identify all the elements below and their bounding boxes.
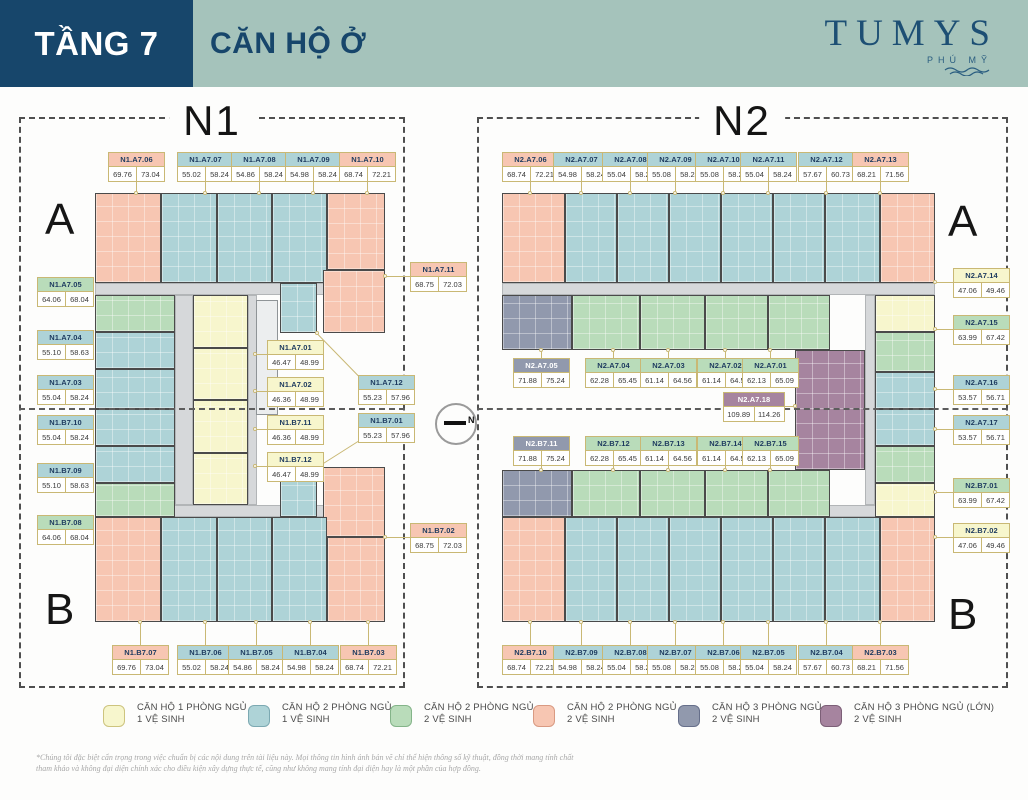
unit-code: N2.A7.18 [724, 393, 784, 407]
unit-block [669, 193, 721, 283]
unit-area-1: 68.75 [411, 538, 438, 552]
leader-dot [878, 620, 882, 624]
unit-label: N1.B7.0864.0668.04 [37, 515, 94, 545]
unit-area-2: 65.09 [770, 373, 798, 387]
plan-title-n2: N2 [699, 98, 785, 144]
legend-swatch [103, 705, 125, 727]
unit-areas: 69.7673.04 [109, 167, 164, 181]
unit-area-1: 55.08 [648, 167, 675, 181]
leader-dot [611, 348, 615, 352]
leader-dot [766, 191, 770, 195]
unit-area-2: 71.56 [880, 660, 908, 674]
unit-area-2: 58.24 [313, 167, 341, 181]
unit-code: N2.B7.04 [799, 646, 854, 660]
unit-area-1: 55.10 [38, 478, 65, 492]
unit-area-1: 46.36 [268, 392, 295, 406]
unit-area-1: 55.02 [178, 167, 205, 181]
unit-area-1: 54.86 [232, 167, 259, 181]
leader-line [935, 389, 953, 390]
unit-area-1: 55.04 [741, 167, 768, 181]
legend-line-2: 2 VỆ SINH [712, 714, 822, 726]
unit-area-2: 58.24 [256, 660, 284, 674]
unit-code: N2.A7.16 [954, 376, 1009, 390]
unit-areas: 68.2171.56 [853, 167, 908, 181]
unit-area-1: 46.47 [268, 467, 295, 481]
unit-label: N2.B7.1068.7472.21 [502, 645, 559, 675]
leader-dot [766, 620, 770, 624]
unit-block [280, 283, 317, 333]
wave-icon [944, 67, 990, 76]
unit-label: N2.A7.0571.8875.24 [513, 358, 570, 388]
leader-dot [539, 348, 543, 352]
unit-area-2: 65.09 [770, 451, 798, 465]
legend-item: CĂN HỘ 2 PHÒNG NGỦ2 VỆ SINH [533, 702, 677, 727]
unit-block [161, 517, 217, 622]
unit-block [95, 193, 161, 283]
unit-block [323, 270, 385, 333]
unit-area-1: 55.04 [38, 430, 65, 444]
unit-areas: 64.0668.04 [38, 530, 93, 544]
unit-area-1: 62.28 [586, 373, 613, 387]
leader-dot [723, 348, 727, 352]
unit-block [272, 517, 327, 622]
unit-label: N1.B7.1246.4748.99 [267, 452, 324, 482]
unit-label: N1.A7.0246.3648.99 [267, 377, 324, 407]
unit-areas: 54.9858.24 [554, 660, 609, 674]
leader-line [385, 537, 410, 538]
unit-area-1: 61.14 [698, 373, 725, 387]
page-title: CĂN HỘ Ở [210, 0, 366, 87]
unit-code: N1.B7.08 [38, 516, 93, 530]
legend-label: CĂN HỘ 3 PHÒNG NGỦ (LỚN)2 VỆ SINH [854, 702, 994, 726]
unit-label: N1.B7.0655.0258.24 [177, 645, 234, 675]
leader-line [675, 622, 676, 645]
unit-block [875, 446, 935, 483]
leader-dot [666, 468, 670, 472]
unit-area-2: 48.99 [295, 392, 323, 406]
unit-area-2: 67.42 [981, 330, 1009, 344]
leader-line [935, 282, 953, 283]
unit-areas: 54.8658.24 [229, 660, 284, 674]
leader-dot [203, 191, 207, 195]
unit-areas: 57.6760.73 [799, 660, 854, 674]
unit-block [193, 348, 248, 400]
unit-areas: 55.0458.24 [741, 167, 796, 181]
corridor [502, 283, 935, 295]
unit-area-1: 68.74 [341, 660, 368, 674]
legend-swatch [678, 705, 700, 727]
leader-dot [933, 327, 937, 331]
unit-block [272, 193, 327, 283]
leader-dot [611, 468, 615, 472]
unit-label: N1.A7.1068.7472.21 [339, 152, 396, 182]
unit-areas: 55.1058.63 [38, 345, 93, 359]
unit-code: N2.B7.05 [741, 646, 796, 660]
unit-areas: 46.3648.99 [268, 392, 323, 406]
leader-dot [666, 348, 670, 352]
unit-areas: 57.6760.73 [799, 167, 854, 181]
unit-area-2: 56.71 [981, 390, 1009, 404]
unit-areas: 55.0458.24 [38, 430, 93, 444]
unit-code: N2.A7.03 [641, 359, 696, 373]
unit-area-2: 58.24 [205, 167, 233, 181]
unit-area-1: 53.57 [954, 430, 981, 444]
unit-code: N2.A7.14 [954, 269, 1009, 283]
unit-area-2: 48.99 [295, 467, 323, 481]
unit-code: N1.A7.08 [232, 153, 287, 167]
unit-code: N1.A7.06 [109, 153, 164, 167]
unit-block [327, 537, 385, 622]
compass: N [435, 403, 475, 443]
leader-dot [308, 620, 312, 624]
unit-block [502, 295, 572, 350]
leader-dot [933, 280, 937, 284]
unit-area-1: 63.99 [954, 493, 981, 507]
unit-areas: 53.5756.71 [954, 430, 1009, 444]
unit-area-2: 68.04 [65, 292, 93, 306]
wing-letter-n1-b: B [45, 588, 74, 632]
unit-areas: 46.4748.99 [268, 355, 323, 369]
legend-item: CĂN HỘ 1 PHÒNG NGỦ1 VỆ SINH [103, 702, 247, 727]
unit-area-1: 62.13 [743, 373, 770, 387]
unit-code: N2.A7.13 [853, 153, 908, 167]
unit-area-1: 55.04 [741, 660, 768, 674]
floor-label-box: TẦNG 7 [0, 0, 193, 87]
unit-block [95, 483, 175, 517]
legend-line-1: CĂN HỘ 2 PHÒNG NGỦ [567, 702, 677, 714]
unit-area-2: 64.56 [668, 373, 696, 387]
unit-areas: 46.4748.99 [268, 467, 323, 481]
unit-block [721, 517, 773, 622]
unit-block [95, 332, 175, 369]
disclaimer-line-2: tham khảo và không đại diện chính xác ch… [36, 763, 716, 774]
leader-line [723, 622, 724, 645]
unit-block [565, 517, 617, 622]
unit-code: N1.A7.03 [38, 376, 93, 390]
unit-block [502, 193, 565, 283]
unit-area-2: 71.56 [880, 167, 908, 181]
compass-north-label: N [468, 415, 475, 425]
unit-area-2: 48.99 [295, 430, 323, 444]
leader-dot [311, 191, 315, 195]
unit-label: N2.B7.0555.0458.24 [740, 645, 797, 675]
brand-logo: TUMYS PHÚ MỸ [824, 14, 990, 76]
leader-dot [721, 620, 725, 624]
unit-areas: 68.2171.56 [853, 660, 908, 674]
unit-area-2: 73.04 [140, 660, 168, 674]
unit-block [721, 193, 773, 283]
unit-areas: 68.7472.21 [341, 660, 396, 674]
unit-code: N1.B7.02 [411, 524, 466, 538]
unit-label: N1.B7.0554.8658.24 [228, 645, 285, 675]
unit-label: N2.B7.1262.2865.45 [585, 436, 642, 466]
unit-label: N1.B7.1055.0458.24 [37, 415, 94, 445]
leader-dot [383, 535, 387, 539]
unit-area-1: 47.06 [954, 538, 981, 552]
leader-line [935, 537, 953, 538]
legend-line-2: 1 VỆ SINH [282, 714, 392, 726]
unit-areas: 55.2357.96 [359, 390, 414, 404]
unit-code: N1.B7.10 [38, 416, 93, 430]
unit-area-1: 55.08 [648, 660, 675, 674]
unit-areas: 62.2865.45 [586, 451, 641, 465]
brand-subtitle: PHÚ MỸ [824, 55, 992, 65]
disclaimer-text: *Chúng tôi đặc biệt cẩn trọng trong việc… [36, 752, 716, 774]
unit-areas: 62.1365.09 [743, 373, 798, 387]
unit-area-1: 69.76 [109, 167, 136, 181]
leader-dot [366, 620, 370, 624]
unit-area-2: 114.26 [754, 407, 785, 421]
unit-area-1: 54.98 [283, 660, 310, 674]
unit-label: N2.A7.1447.0649.46 [953, 268, 1010, 298]
unit-area-2: 60.73 [826, 167, 854, 181]
leader-dot [628, 620, 632, 624]
leader-dot [768, 348, 772, 352]
leader-dot [203, 620, 207, 624]
unit-code: N1.A7.10 [340, 153, 395, 167]
compass-needle-icon [444, 421, 466, 425]
unit-label: N1.B7.0368.7472.21 [340, 645, 397, 675]
unit-block [768, 295, 830, 350]
leader-line [205, 622, 206, 645]
unit-area-1: 55.02 [178, 660, 205, 674]
leader-line [935, 492, 953, 493]
unit-block [217, 193, 272, 283]
unit-label: N2.B7.0163.9967.42 [953, 478, 1010, 508]
leader-line [385, 276, 410, 277]
unit-area-1: 68.21 [853, 167, 880, 181]
unit-block [572, 295, 640, 350]
unit-areas: 61.1464.56 [641, 451, 696, 465]
floor-label: TẦNG 7 [34, 25, 158, 63]
leader-line [768, 622, 769, 645]
unit-block [640, 470, 705, 517]
unit-label: N1.A7.1168.7572.03 [410, 262, 467, 292]
legend-line-2: 2 VỆ SINH [567, 714, 677, 726]
leader-dot [134, 191, 138, 195]
unit-area-2: 49.46 [981, 283, 1009, 297]
unit-areas: 54.9858.24 [554, 167, 609, 181]
legend-label: CĂN HỘ 2 PHÒNG NGỦ2 VỆ SINH [567, 702, 677, 726]
unit-areas: 54.8658.24 [232, 167, 287, 181]
unit-code: N2.B7.09 [554, 646, 609, 660]
legend-line-1: CĂN HỘ 2 PHÒNG NGỦ [424, 702, 534, 714]
unit-areas: 109.89114.26 [724, 407, 784, 421]
unit-area-2: 57.96 [386, 390, 414, 404]
leader-dot [253, 427, 257, 431]
unit-label: N1.B7.0268.7572.03 [410, 523, 467, 553]
unit-area-1: 54.98 [554, 660, 581, 674]
leader-dot [539, 468, 543, 472]
unit-block [773, 193, 825, 283]
unit-area-2: 60.73 [826, 660, 854, 674]
unit-area-1: 46.36 [268, 430, 295, 444]
leader-dot [628, 191, 632, 195]
unit-label: N1.A7.0455.1058.63 [37, 330, 94, 360]
unit-area-2: 56.71 [981, 430, 1009, 444]
unit-code: N2.A7.11 [741, 153, 796, 167]
leader-dot [528, 191, 532, 195]
unit-area-2: 58.63 [65, 345, 93, 359]
leader-dot [257, 191, 261, 195]
unit-area-2: 72.21 [367, 167, 395, 181]
unit-areas: 68.7572.03 [411, 538, 466, 552]
unit-label: N1.B7.0155.2357.96 [358, 413, 415, 443]
legend-line-1: CĂN HỘ 3 PHÒNG NGỦ (LỚN) [854, 702, 994, 714]
legend-swatch [533, 705, 555, 727]
unit-label: N2.A7.1753.5756.71 [953, 415, 1010, 445]
unit-areas: 54.9858.24 [283, 660, 338, 674]
leader-dot [254, 620, 258, 624]
unit-block [572, 470, 640, 517]
legend-line-2: 2 VỆ SINH [854, 714, 994, 726]
corridor [175, 295, 193, 505]
unit-block [95, 409, 175, 446]
leader-dot [673, 191, 677, 195]
unit-label: N2.A7.1653.5756.71 [953, 375, 1010, 405]
unit-code: N2.B7.11 [514, 437, 569, 451]
unit-area-2: 72.03 [438, 538, 466, 552]
unit-areas: 63.9967.42 [954, 493, 1009, 507]
unit-block [705, 470, 768, 517]
unit-block [640, 295, 705, 350]
unit-areas: 55.0258.24 [178, 660, 233, 674]
unit-area-1: 54.98 [554, 167, 581, 181]
legend-label: CĂN HỘ 3 PHÒNG NGỦ2 VỆ SINH [712, 702, 822, 726]
unit-area-1: 55.04 [603, 167, 630, 181]
unit-label: N2.A7.0162.1365.09 [742, 358, 799, 388]
unit-label: N2.A7.0361.1464.56 [640, 358, 697, 388]
unit-code: N2.A7.04 [586, 359, 641, 373]
legend-item: CĂN HỘ 2 PHÒNG NGỦ2 VỆ SINH [390, 702, 534, 727]
unit-area-1: 55.23 [359, 390, 386, 404]
leader-line [310, 622, 311, 645]
unit-block [669, 517, 721, 622]
unit-label: N2.B7.0247.0649.46 [953, 523, 1010, 553]
unit-code: N1.A7.09 [286, 153, 341, 167]
unit-areas: 55.0458.24 [38, 390, 93, 404]
brand-name: TUMYS [824, 14, 999, 54]
unit-areas: 53.5756.71 [954, 390, 1009, 404]
legend-label: CĂN HỘ 2 PHÒNG NGỦ1 VỆ SINH [282, 702, 392, 726]
legend-line-2: 1 VỆ SINH [137, 714, 247, 726]
unit-area-2: 64.56 [668, 451, 696, 465]
plan-title-n1: N1 [169, 98, 255, 144]
unit-area-1: 55.10 [38, 345, 65, 359]
unit-code: N2.B7.13 [641, 437, 696, 451]
unit-areas: 61.1464.56 [641, 373, 696, 387]
leader-dot [579, 191, 583, 195]
unit-area-2: 58.24 [310, 660, 338, 674]
leader-dot [824, 620, 828, 624]
legend-label: CĂN HỘ 2 PHÒNG NGỦ2 VỆ SINH [424, 702, 534, 726]
leader-dot [933, 387, 937, 391]
leader-line [880, 622, 881, 645]
unit-block [565, 193, 617, 283]
unit-code: N2.A7.05 [514, 359, 569, 373]
legend-line-1: CĂN HỘ 3 PHÒNG NGỦ [712, 702, 822, 714]
unit-area-2: 48.99 [295, 355, 323, 369]
unit-areas: 63.9967.42 [954, 330, 1009, 344]
unit-block [502, 517, 565, 622]
legend-item: CĂN HỘ 3 PHÒNG NGỦ2 VỆ SINH [678, 702, 822, 727]
unit-areas: 64.0668.04 [38, 292, 93, 306]
legend-item: CĂN HỘ 2 PHÒNG NGỦ1 VỆ SINH [248, 702, 392, 727]
unit-area-2: 58.24 [65, 430, 93, 444]
legend-item: CĂN HỘ 3 PHÒNG NGỦ (LỚN)2 VỆ SINH [820, 702, 994, 727]
unit-block [95, 369, 175, 409]
unit-label: N1.A7.0954.9858.24 [285, 152, 342, 182]
unit-area-2: 75.24 [541, 451, 569, 465]
unit-area-2: 58.24 [259, 167, 287, 181]
unit-area-2: 67.42 [981, 493, 1009, 507]
leader-dot [824, 191, 828, 195]
legend-line-2: 2 VỆ SINH [424, 714, 534, 726]
unit-areas: 69.7673.04 [113, 660, 168, 674]
unit-area-1: 61.14 [641, 373, 668, 387]
unit-code: N2.B7.15 [743, 437, 798, 451]
leader-dot [933, 490, 937, 494]
unit-area-2: 65.45 [613, 373, 641, 387]
unit-code: N2.B7.12 [586, 437, 641, 451]
unit-code: N2.B7.03 [853, 646, 908, 660]
leader-line [530, 622, 531, 645]
unit-label: N2.A7.1257.6760.73 [798, 152, 855, 182]
unit-area-2: 72.21 [368, 660, 396, 674]
unit-area-1: 69.76 [113, 660, 140, 674]
corridor [865, 295, 875, 505]
unit-area-1: 54.86 [229, 660, 256, 674]
unit-areas: 55.1058.63 [38, 478, 93, 492]
unit-label: N1.A7.0854.8658.24 [231, 152, 288, 182]
unit-area-1: 53.57 [954, 390, 981, 404]
unit-area-1: 55.04 [38, 390, 65, 404]
unit-area-2: 57.96 [386, 428, 414, 442]
unit-areas: 55.0258.24 [178, 167, 233, 181]
unit-area-1: 68.74 [503, 167, 530, 181]
unit-label: N2.B7.1562.1365.09 [742, 436, 799, 466]
unit-block [617, 517, 669, 622]
unit-block [217, 517, 272, 622]
unit-area-1: 54.98 [286, 167, 313, 181]
unit-label: N1.A7.0564.0668.04 [37, 277, 94, 307]
unit-areas: 68.7472.21 [503, 660, 558, 674]
unit-area-1: 109.89 [724, 407, 754, 421]
legend-swatch [390, 705, 412, 727]
unit-block [705, 295, 768, 350]
unit-code: N1.B7.12 [268, 453, 323, 467]
unit-label: N1.A7.1255.2357.96 [358, 375, 415, 405]
unit-label: N1.A7.0755.0258.24 [177, 152, 234, 182]
unit-area-2: 49.46 [981, 538, 1009, 552]
unit-area-1: 46.47 [268, 355, 295, 369]
unit-areas: 46.3648.99 [268, 430, 323, 444]
unit-area-1: 55.04 [603, 660, 630, 674]
unit-code: N2.A7.17 [954, 416, 1009, 430]
unit-area-2: 58.63 [65, 478, 93, 492]
unit-label: N1.B7.1146.3648.99 [267, 415, 324, 445]
unit-label: N2.B7.1361.1464.56 [640, 436, 697, 466]
unit-block [193, 453, 248, 505]
unit-code: N1.B7.09 [38, 464, 93, 478]
unit-label: N1.B7.0955.1058.63 [37, 463, 94, 493]
unit-area-1: 64.06 [38, 292, 65, 306]
unit-label: N2.A7.1155.0458.24 [740, 152, 797, 182]
unit-area-2: 58.24 [768, 167, 796, 181]
unit-code: N1.B7.04 [283, 646, 338, 660]
unit-code: N2.A7.06 [503, 153, 558, 167]
unit-code: N1.A7.05 [38, 278, 93, 292]
